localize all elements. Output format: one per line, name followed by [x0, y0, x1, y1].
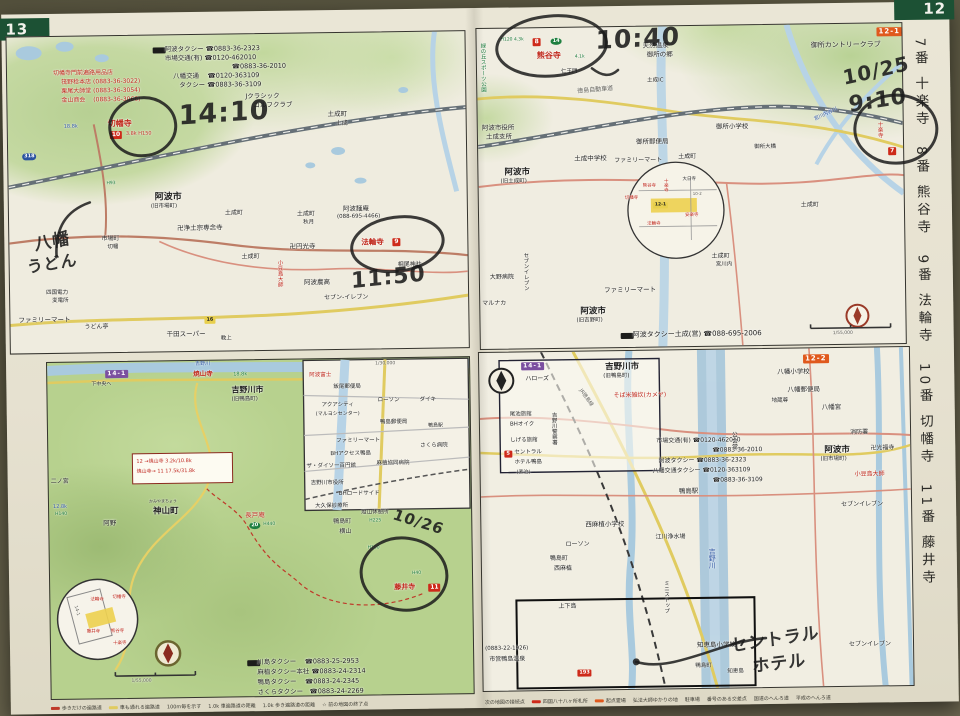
map-label: ファミリーマート: [18, 317, 70, 325]
map-label: 尾池旅館: [510, 412, 532, 418]
map-label: 御所大橋: [754, 145, 776, 151]
map-panel-12-1: 12-1H120 4.3k814熊谷寺4.1k仁王門緑の丘スポーツ公園天然温泉御…: [475, 22, 906, 350]
legend-item: 番号のある交差点: [707, 695, 747, 703]
map-label: 吉野川市: [231, 386, 263, 395]
map-panel-14-1: 14-1下中央へ焼山寺18.8k吉野川吉野川市(旧鴨島町)12 →焼山寺 3.2…: [46, 356, 475, 700]
map-label: 土成支所: [486, 134, 512, 141]
map-label: うどん亭: [84, 324, 108, 331]
legend-swatch: [51, 706, 60, 709]
map-labels: 12-214-1JR徳島線ハローズ吉野川市(旧鴨島町)そば米雑炊(カメヤ)吉野川…: [479, 347, 914, 691]
map-label: 阿波タクシー ☎0883-36-2323: [165, 45, 260, 53]
map-label: 筏野稔本店 (0883-36-3022): [61, 79, 140, 86]
map-label: 阿波タクシー ☎0883-36-2323: [658, 457, 746, 465]
map-label: 1/55,000: [131, 680, 151, 685]
map-label: BHロードサイド: [339, 491, 380, 497]
map-legend-right: 次の地図の接続点四国八十八ヶ所札所起点霊場弘法大師ゆかりの地駐車場番号のある交差…: [485, 690, 915, 708]
map-label: 吉野川市役所: [311, 481, 344, 487]
map-label: 八幡交通タクシー ☎0120-363109: [653, 467, 751, 475]
map-label: 御所の郷: [647, 51, 673, 58]
map-label: 阿波市: [824, 446, 850, 455]
map-label: 江川浄水場: [655, 534, 685, 541]
map-label: 宮川内: [716, 262, 733, 268]
map-label: ホテル鴨島: [514, 460, 542, 466]
map-label: 徳島自動車道: [577, 86, 613, 95]
map-label: H440: [263, 523, 275, 528]
map-label: 相尾神社: [398, 262, 422, 269]
map-label: 天然温泉: [643, 42, 669, 49]
map-label: 土成町: [801, 202, 819, 209]
map-label: 藤井寺: [394, 584, 415, 592]
map-label: 金山商会 (0883-36-3066): [61, 97, 140, 104]
map-label: 土成町: [712, 254, 730, 261]
map-label: H40: [412, 572, 421, 577]
map-label: 四国電力: [46, 291, 68, 297]
map-label: 法輪寺: [361, 238, 384, 246]
map-label: (088-695-4466): [337, 214, 380, 220]
map-label: 阿波市: [580, 307, 606, 316]
map-label: 阿波農高: [304, 279, 330, 286]
map-label: 切幡寺: [625, 197, 639, 202]
map-label: ファミリーマート: [604, 287, 656, 295]
map-panel-12-2: 12-214-1JR徳島線ハローズ吉野川市(旧鴨島町)そば米雑炊(カメヤ)吉野川…: [478, 346, 915, 692]
map-label: 八幡宮: [822, 404, 842, 411]
map-label: そば米雑炊(カメヤ): [614, 392, 667, 399]
map-label: 土成町: [678, 154, 696, 161]
map-labels: 14-1下中央へ焼山寺18.8k吉野川吉野川市(旧鴨島町)12 →焼山寺 3.2…: [47, 357, 474, 699]
map-label: 上下島: [558, 604, 576, 611]
map-badge: 10: [110, 131, 122, 139]
map-label: 18.8k: [233, 372, 247, 377]
map-label: 切幡寺: [108, 120, 132, 129]
map-label: 下中央へ: [91, 382, 111, 388]
map-label: 4.1k: [575, 56, 585, 61]
map-label: 市場交通(有) ☎0120-462010: [165, 54, 257, 62]
map-label: マルナカ: [482, 301, 506, 308]
map-labels: 12-1H120 4.3k814熊谷寺4.1k仁王門緑の丘スポーツ公園天然温泉御…: [476, 23, 905, 349]
map-label: 大日寺: [683, 178, 697, 183]
legend-item: 四国八十八ヶ所札所: [532, 697, 588, 705]
map-label: 麻植協同病院: [376, 461, 409, 467]
map-label: 法輪寺: [90, 598, 104, 603]
map-label: 1/55,000: [833, 332, 853, 337]
map-label: 八幡郵便局: [787, 386, 820, 393]
map-badge: 16: [204, 317, 215, 324]
map-label: ローソン: [378, 398, 400, 404]
map-label: 卍浄土宗専念寺: [177, 225, 223, 232]
map-label: 土成町: [297, 211, 315, 218]
map-label: (旧市場町): [151, 204, 177, 210]
map-label: 川島タクシー ☎0883-25-2953: [257, 658, 359, 666]
legend-item: 車も通れる遍路道: [109, 703, 160, 711]
map-badge: 193: [577, 669, 592, 676]
map-label: 18.8k: [64, 125, 78, 130]
map-label: 横山: [339, 529, 351, 535]
map-badge: S: [504, 451, 512, 458]
map-label: 12 →焼山寺 3.2k/10.8k: [136, 459, 191, 465]
map-label: ダイキ: [420, 398, 437, 404]
map-label: 御所カントリークラブ: [811, 41, 881, 49]
legend-item: 平成のへんろ道: [796, 694, 831, 701]
map-label: H140: [55, 513, 67, 518]
map-label: 阿波市: [155, 193, 182, 203]
map-label: 阿波麺庵: [343, 206, 369, 213]
map-label: 市営鴨島温泉: [489, 656, 525, 663]
map-label: 卍光福寺: [870, 445, 894, 452]
legend-swatch: [595, 699, 604, 702]
map-label: アクアシティ: [322, 403, 354, 409]
map-badge: 9: [392, 238, 400, 246]
map-book-page: 13 12 7番 十楽寺 8番 熊谷寺 9番 法輪寺 10番 切幡寺 11番 藤…: [1, 1, 959, 714]
map-label: 宮川内谷川: [814, 107, 839, 123]
legend-item: 起点霊場: [595, 696, 626, 703]
map-label: 御所小学校: [716, 123, 749, 130]
map-label: 卍円光寺: [289, 243, 315, 250]
map-label: (0883-22-1926): [485, 646, 528, 652]
map-label: 二ノ宮: [51, 479, 69, 486]
legend-item: 1.0k 歩き遍路道の距離: [263, 701, 316, 709]
map-label: 教上: [221, 336, 232, 342]
legend-swatch: [532, 700, 541, 703]
map-badge: 14-1: [105, 370, 128, 378]
legend-item: 次の地図の接続点: [485, 698, 525, 706]
map-label: 緑の丘スポーツ公園: [479, 43, 485, 93]
map-label: ハローズ: [525, 376, 549, 383]
map-label: (旧市場町): [820, 457, 846, 463]
map-label: かみやまちょう: [149, 499, 177, 504]
legend-item: 100m毎を示す: [167, 702, 202, 709]
map-label: 千田スーパー: [167, 331, 206, 338]
map-label: H225: [369, 519, 381, 524]
page-tab-12: 12: [894, 0, 954, 20]
map-label: 土成中学校: [574, 155, 607, 162]
map-label: 12.8k: [53, 505, 67, 510]
map-label: 小豆島大師: [276, 260, 282, 288]
map-label: (素泊): [517, 470, 531, 475]
map-label: 鴨島町: [333, 519, 351, 526]
map-label: 西麻植小学校: [585, 521, 624, 528]
map-label: 知恵島小学校: [697, 641, 736, 648]
map-badge: 14-1: [521, 362, 544, 370]
map-label: 栗尾大師堂 (0883-36-3054): [61, 88, 140, 95]
map-label: 土成: [336, 121, 348, 127]
map-label: 西麻植: [554, 566, 572, 573]
legend-item: 駐車場: [685, 695, 700, 702]
map-label: 公会堂: [730, 431, 737, 449]
map-label: (旧土成町): [501, 179, 527, 185]
map-label: さくら病院: [420, 443, 448, 449]
map-label: 神山町: [153, 507, 179, 516]
map-label: タクシー ☎0883-36-3109: [179, 81, 261, 89]
map-label: 熊谷寺: [643, 185, 657, 190]
map-label: 切幡寺: [112, 596, 126, 601]
map-label: セブンイレブン: [522, 252, 528, 291]
map-label: 吉野川: [708, 548, 716, 569]
map-label: セブンイレブン: [849, 641, 891, 648]
map-label: 藤井寺: [87, 630, 101, 635]
map-label: しげる旅館: [510, 438, 538, 444]
map-label: 市場町: [101, 236, 119, 243]
map-label: ミニストップ: [662, 580, 668, 613]
map-label: 大野病院: [490, 275, 514, 282]
map-label: 3.8k H150: [126, 132, 152, 138]
map-label: H120 4.3k: [501, 38, 524, 43]
map-label: ファミリーマート: [614, 157, 662, 164]
map-label: 土成町: [225, 210, 243, 217]
map-label: ファミリーマート: [336, 438, 380, 444]
map-label: (マルヨシセンター): [316, 412, 360, 418]
map-label: 鴨島駅: [679, 488, 699, 495]
map-label: 土成IC: [647, 78, 664, 84]
map-label: 燈山休憩所: [361, 510, 389, 516]
map-label: 秋月: [303, 220, 314, 226]
map-label: 焼山寺: [193, 371, 213, 378]
legend-item: 歩きだけの遍路道: [51, 704, 102, 712]
map-label: JR徳島線: [578, 389, 594, 408]
map-label: 御所郵便局: [636, 138, 669, 145]
map-label: さくらタクシー ☎0883-24-2269: [258, 688, 364, 696]
map-label: 1/30,000: [375, 362, 395, 367]
map-label: (旧鴨島町): [603, 374, 629, 380]
map-label: BHオイク: [510, 422, 534, 428]
map-label: セントラル: [514, 450, 542, 456]
map-label: ローソン: [566, 541, 590, 548]
map-label: ゴルフクラブ: [253, 102, 292, 109]
map-label: 鴨島駅: [428, 424, 443, 429]
map-badge: 12-1: [653, 202, 668, 208]
map-label: 阿波市: [504, 168, 530, 177]
map-label: Jクラシック: [245, 93, 279, 100]
map-label: (旧鴨島町): [232, 397, 258, 403]
map-label: 麻植タクシー本社 ☎0883-24-2314: [257, 668, 365, 676]
map-label: 飯尾郵便局: [333, 385, 361, 391]
legend-item: 弘法大師ゆかりの地: [633, 696, 678, 704]
map-badge: 12-2: [803, 354, 829, 363]
map-badge: 12-1: [876, 27, 902, 36]
map-badge: 14: [551, 38, 562, 45]
map-label: 鴨島タクシー ☎0883-24-2345: [257, 678, 359, 686]
map-label: セブンイレブン: [841, 501, 883, 508]
map-label: 切幡寺門前遍路用品店: [53, 70, 113, 77]
map-label: 吉野川: [195, 362, 210, 367]
map-label: 十楽寺: [876, 121, 882, 138]
map-label: 変電所: [52, 299, 69, 305]
map-label: 仁王門: [561, 70, 578, 76]
map-label: 大久保診療所: [315, 504, 348, 510]
map-label: (旧吉野町): [576, 318, 602, 324]
map-label: 切幡: [107, 245, 118, 251]
map-label: 鴨島郵便局: [380, 420, 408, 426]
map-label: ザ・ダイソー百円館: [306, 464, 356, 470]
legend-swatch: [109, 706, 118, 709]
map-label: ☎0883-36-3109: [713, 477, 763, 484]
map-label: 法輪寺: [647, 222, 661, 227]
map-label: セブン-イレブン: [324, 295, 368, 302]
map-label: ☎0883-36-2010: [232, 63, 286, 71]
legend-item: 1.0k 車遍路道の距離: [208, 702, 256, 710]
map-label: 熊谷寺: [111, 630, 125, 635]
map-label: 熊谷寺: [537, 52, 561, 61]
map-label: H100: [368, 546, 380, 551]
map-label: BHアクセス鴨島: [330, 452, 371, 458]
map-label: H93: [107, 182, 116, 187]
margin-temple-index: 7番 十楽寺 8番 熊谷寺 9番 法輪寺 10番 切幡寺 11番 藤井寺: [910, 38, 939, 668]
map-badge: 20: [249, 522, 260, 529]
map-label: 十楽寺: [663, 178, 668, 192]
map-label: 長戸庵: [245, 512, 265, 519]
map-labels: 阿波タクシー ☎0883-36-2323市場交通(有) ☎0120-462010…: [6, 31, 468, 353]
map-label: 阿波タクシー土成(営) ☎088-695-2006: [633, 330, 762, 339]
map-label: 土成町: [242, 254, 260, 261]
map-label: 土成町: [328, 111, 348, 118]
map-label: 消防署: [850, 430, 868, 437]
map-label: 10-2: [693, 192, 702, 196]
map-badge: 11: [428, 584, 440, 592]
map-badge: 7: [888, 147, 896, 155]
map-badge: 8: [533, 38, 541, 46]
map-label: 八幡交通 ☎0120-363109: [173, 72, 259, 80]
legend-item: ☆ 前の地図の終了点: [322, 700, 368, 708]
map-label: 14-1: [72, 605, 79, 616]
map-label: 焼山寺→ 11 17.5k/31.8k: [137, 469, 196, 475]
map-label: 市場交通(有) ☎0120-462010: [656, 437, 740, 444]
map-label: 鴨島町: [695, 664, 712, 670]
map-label: 吉野川警察署: [550, 412, 556, 445]
map-label: 阿波市役所: [482, 124, 515, 131]
legend-item: 国道のへんろ道: [754, 694, 789, 701]
map-label: 小豆島大師: [855, 471, 885, 478]
map-label: 地蔵尊: [772, 399, 789, 405]
map-label: 知恵島: [727, 669, 744, 675]
map-label: 八幡小学校: [777, 368, 810, 375]
map-label: 阿波富士: [309, 373, 331, 379]
map-panel-13-upper: 阿波タクシー ☎0883-36-2323市場交通(有) ☎0120-462010…: [5, 30, 469, 354]
map-label: 阿野: [103, 520, 116, 527]
map-label: 十楽寺: [113, 642, 127, 647]
map-label: 吉野川市: [605, 363, 639, 372]
map-label: 鴨島町: [550, 556, 568, 563]
map-badge: 318: [22, 153, 37, 160]
map-label: 安楽寺: [685, 214, 699, 219]
photo-background: 13 12 7番 十楽寺 8番 熊谷寺 9番 法輪寺 10番 切幡寺 11番 藤…: [0, 0, 960, 716]
